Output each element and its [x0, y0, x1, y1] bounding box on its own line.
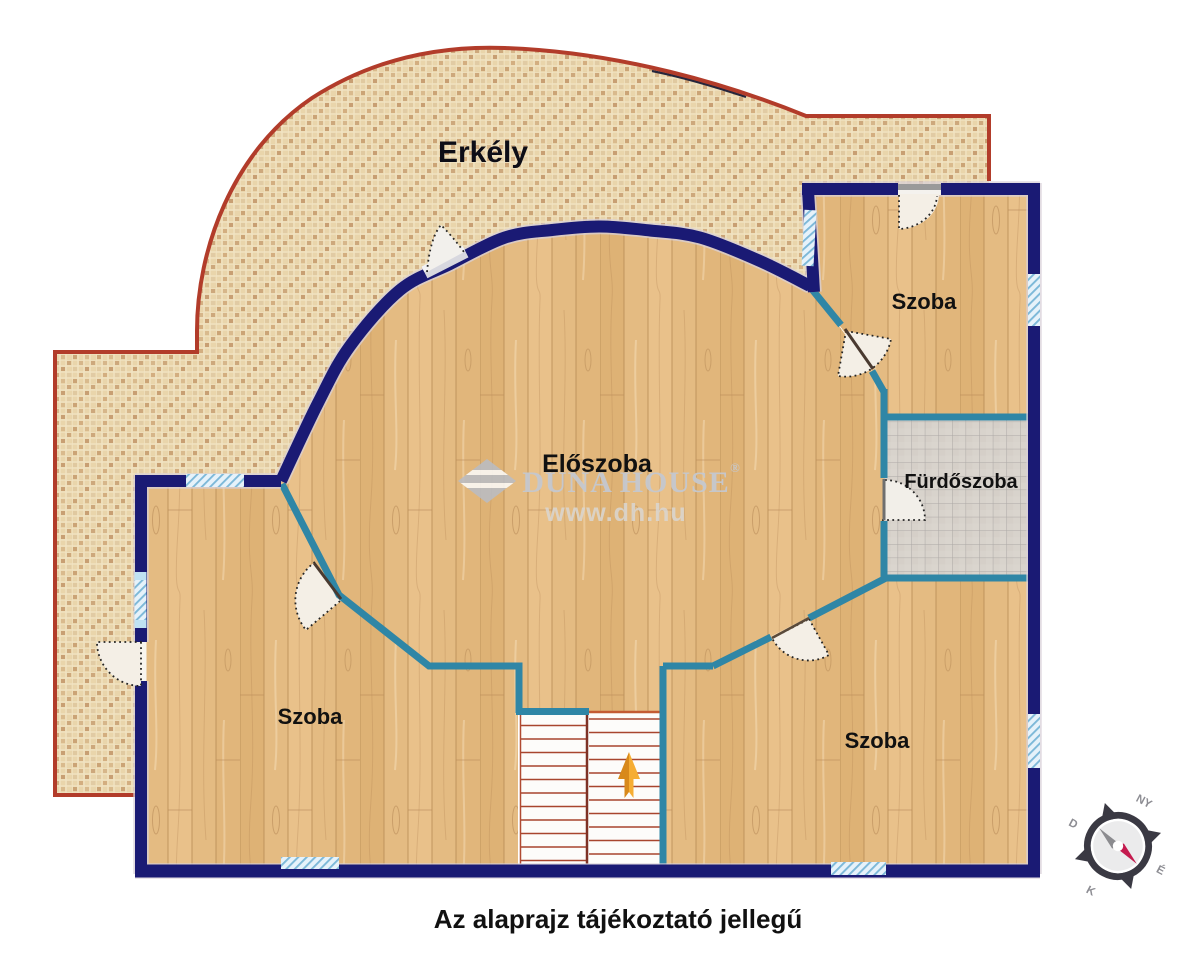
svg-text:www.dh.hu: www.dh.hu	[544, 499, 686, 527]
svg-text:Szoba: Szoba	[278, 704, 344, 729]
svg-text:Szoba: Szoba	[892, 289, 958, 314]
svg-text:Fürdőszoba: Fürdőszoba	[904, 471, 1018, 493]
svg-text:Előszoba: Előszoba	[542, 450, 653, 478]
svg-text:Az alaprajz tájékoztató jelleg: Az alaprajz tájékoztató jellegű	[434, 904, 802, 934]
svg-text:®: ®	[730, 460, 740, 475]
svg-text:Szoba: Szoba	[845, 728, 911, 753]
svg-text:Erkély: Erkély	[438, 136, 528, 169]
